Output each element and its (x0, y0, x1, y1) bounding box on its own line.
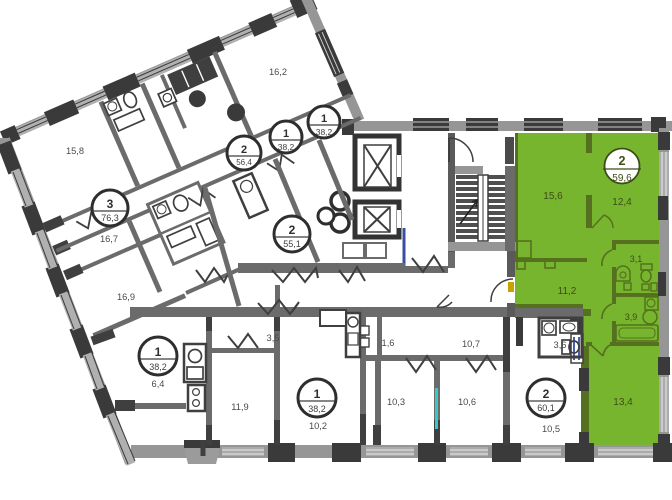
svg-text:2: 2 (241, 144, 247, 156)
svg-text:3: 3 (107, 197, 114, 211)
svg-text:16,2: 16,2 (269, 67, 287, 77)
svg-text:1,6: 1,6 (382, 338, 395, 348)
svg-text:3,9: 3,9 (625, 312, 638, 322)
svg-text:60,1: 60,1 (537, 403, 555, 413)
svg-text:13,4: 13,4 (613, 397, 633, 408)
svg-text:2: 2 (543, 387, 550, 401)
svg-text:3,1: 3,1 (630, 254, 643, 264)
svg-text:55,1: 55,1 (283, 239, 301, 249)
svg-text:10,6: 10,6 (458, 397, 476, 407)
svg-text:6,4: 6,4 (152, 379, 165, 389)
svg-text:12,4: 12,4 (612, 197, 632, 208)
svg-text:3,5: 3,5 (267, 333, 280, 343)
svg-text:1: 1 (314, 387, 321, 401)
svg-text:10,5: 10,5 (542, 424, 560, 434)
svg-text:38,2: 38,2 (278, 142, 295, 152)
svg-text:10,2: 10,2 (309, 421, 327, 431)
svg-text:11,9: 11,9 (231, 402, 248, 412)
svg-text:16,9: 16,9 (117, 292, 135, 302)
svg-text:56,4: 56,4 (236, 158, 252, 167)
svg-text:16,7: 16,7 (100, 234, 118, 244)
svg-text:15,6: 15,6 (543, 191, 563, 202)
svg-text:1: 1 (155, 345, 162, 359)
svg-text:1: 1 (321, 113, 327, 125)
svg-text:38,2: 38,2 (316, 127, 333, 137)
svg-text:10,3: 10,3 (387, 397, 405, 407)
svg-text:3,6: 3,6 (554, 340, 567, 350)
svg-text:15,8: 15,8 (66, 146, 84, 156)
svg-text:38,2: 38,2 (149, 362, 167, 372)
svg-text:59,6: 59,6 (612, 173, 632, 184)
svg-text:76,3: 76,3 (101, 213, 119, 223)
svg-text:2: 2 (619, 154, 626, 168)
svg-text:1: 1 (283, 128, 289, 140)
svg-text:11,2: 11,2 (558, 286, 577, 297)
svg-text:10,7: 10,7 (462, 339, 480, 349)
svg-text:38,2: 38,2 (308, 404, 326, 414)
svg-text:2: 2 (289, 223, 296, 237)
